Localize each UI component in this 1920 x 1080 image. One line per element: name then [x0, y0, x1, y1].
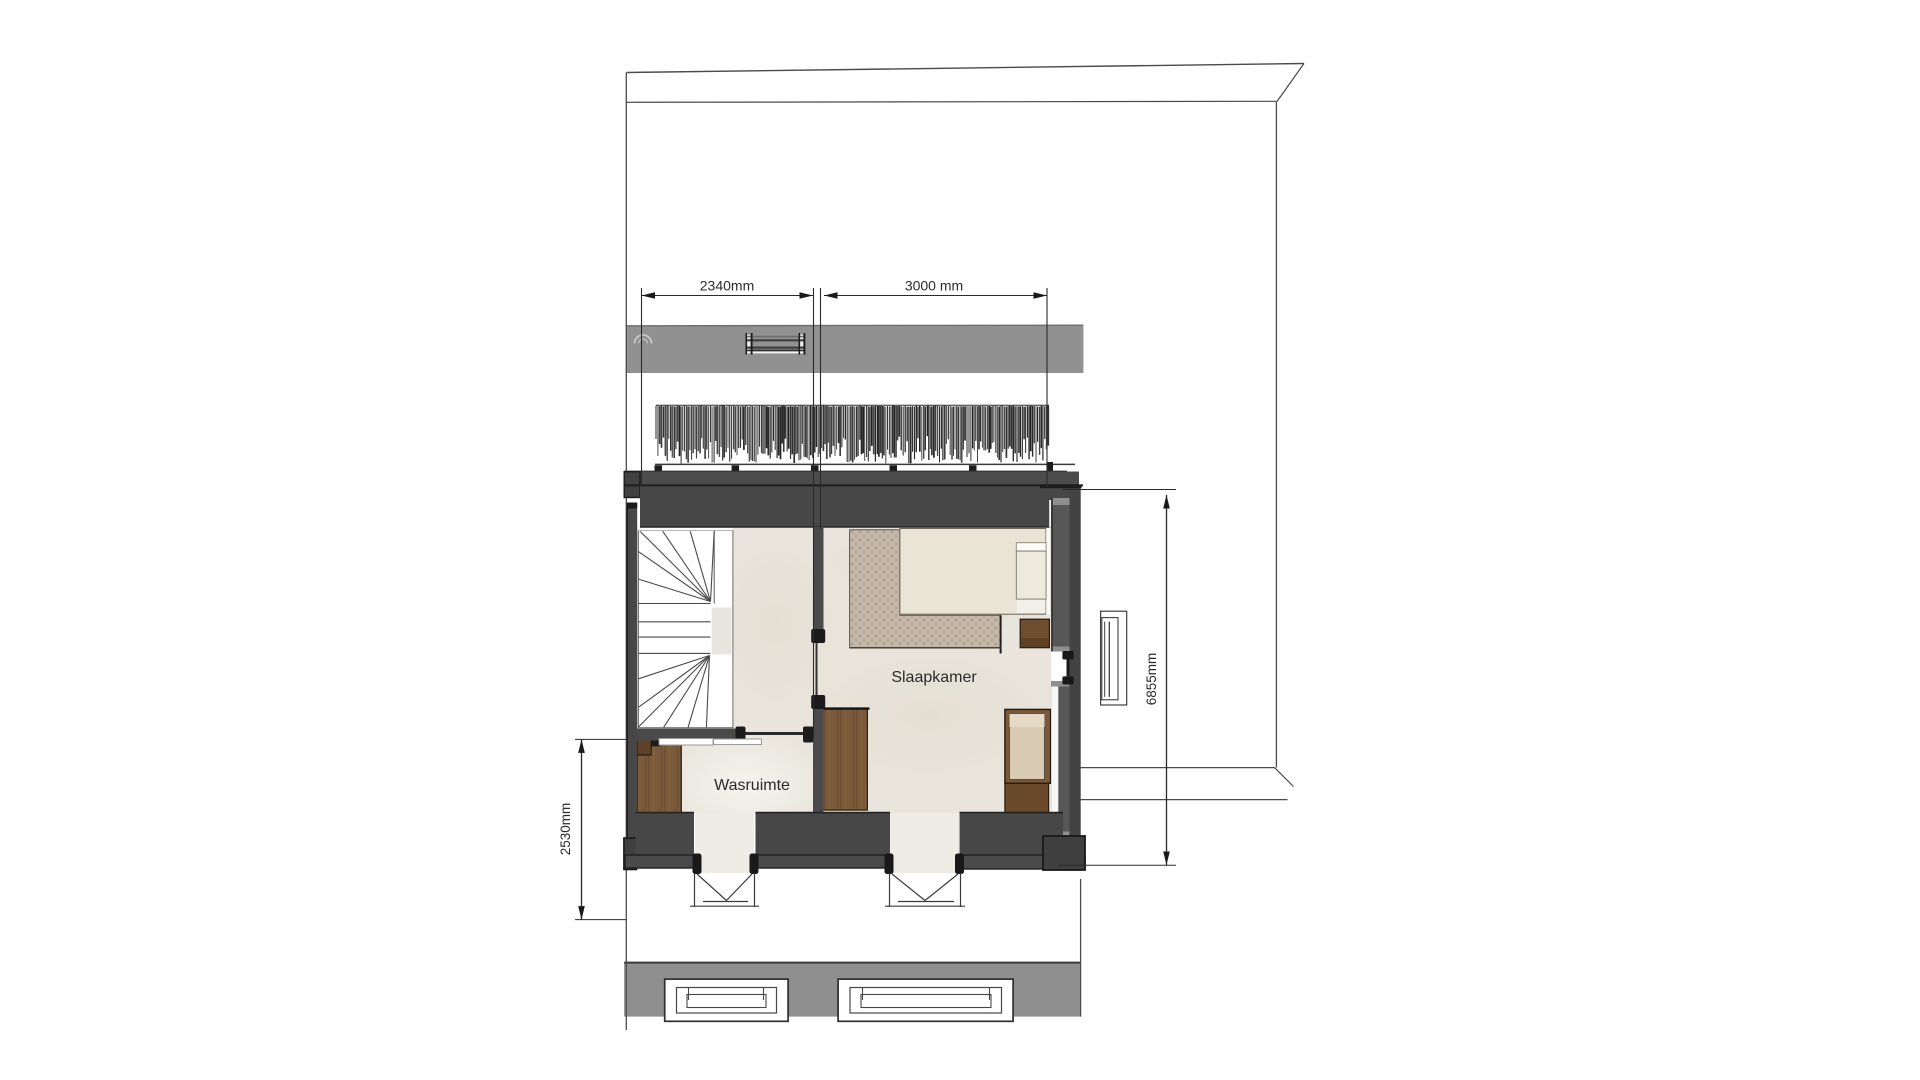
svg-text:2530mm: 2530mm [558, 803, 573, 856]
svg-text:2340mm: 2340mm [700, 278, 754, 294]
svg-text:Slaapkamer: Slaapkamer [891, 669, 977, 686]
svg-text:6855mm: 6855mm [1144, 653, 1159, 706]
svg-text:Wasruimte: Wasruimte [714, 777, 790, 794]
svg-text:3000 mm: 3000 mm [905, 278, 963, 294]
